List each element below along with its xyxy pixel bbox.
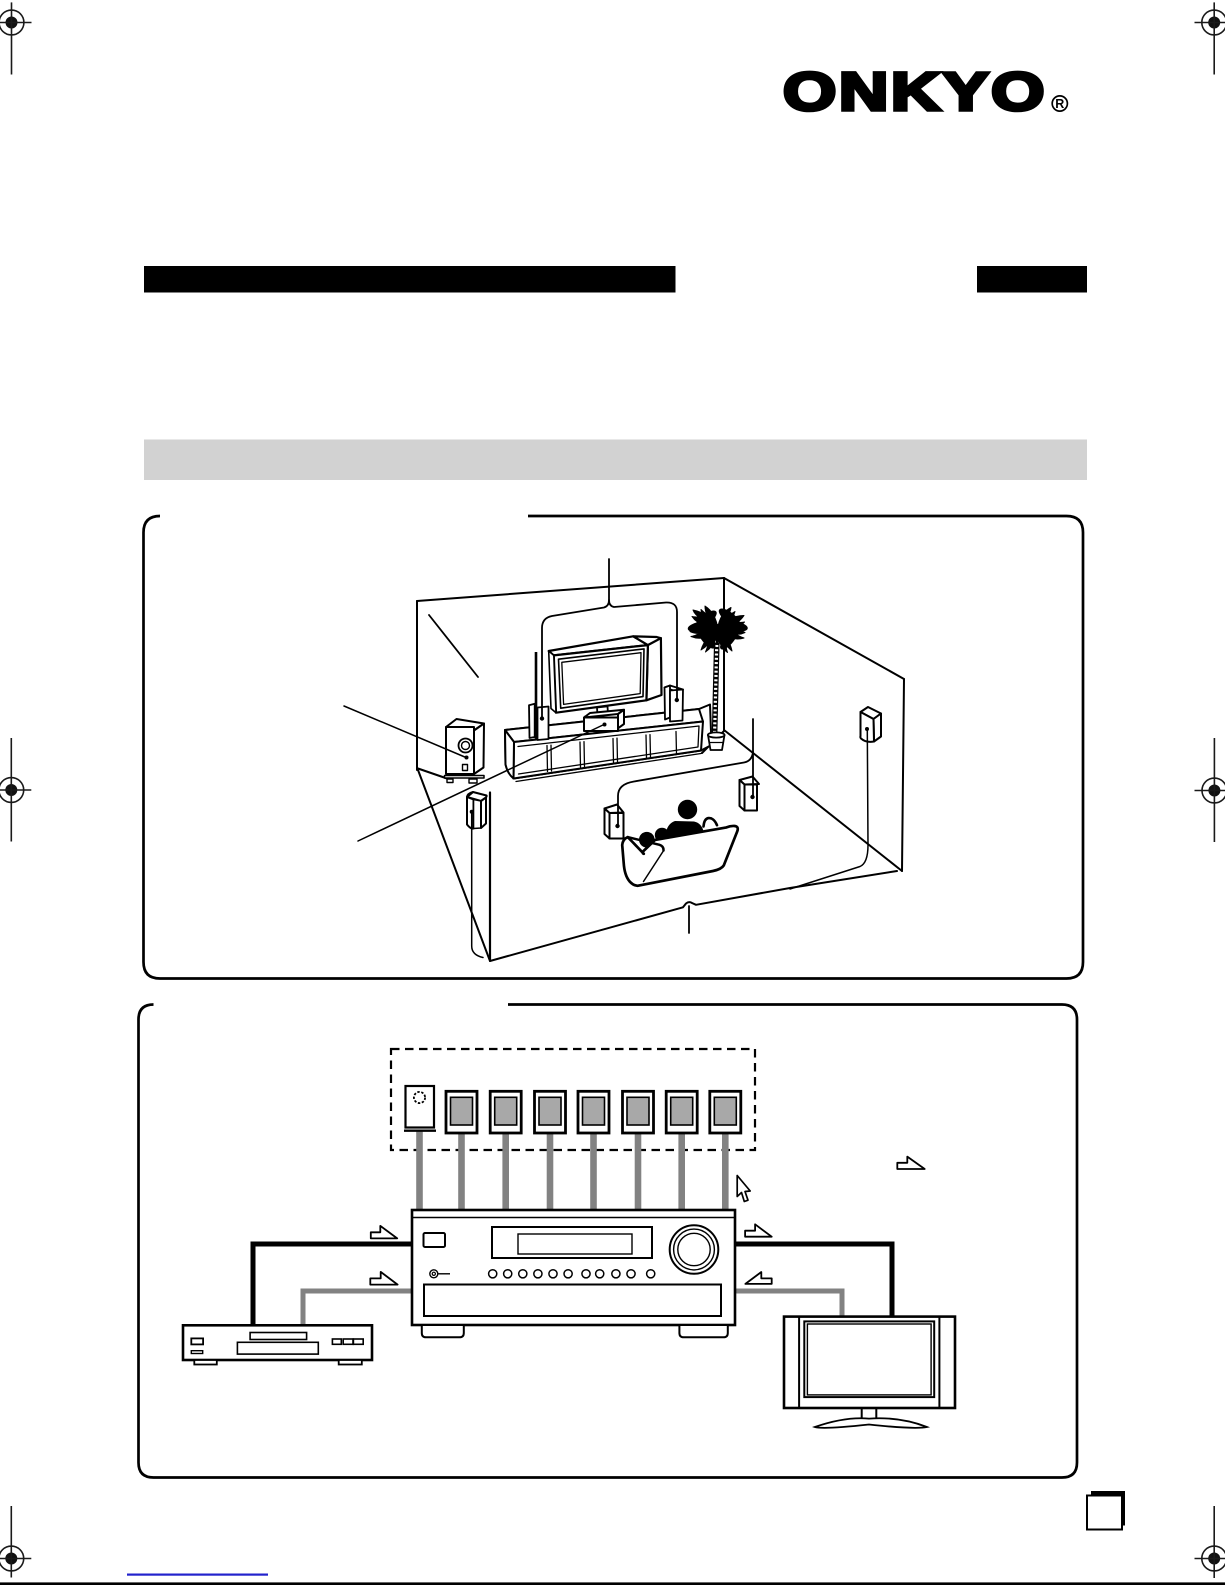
svg-text:R: R <box>1055 97 1064 111</box>
svg-text:ONKYO: ONKYO <box>783 62 1047 122</box>
